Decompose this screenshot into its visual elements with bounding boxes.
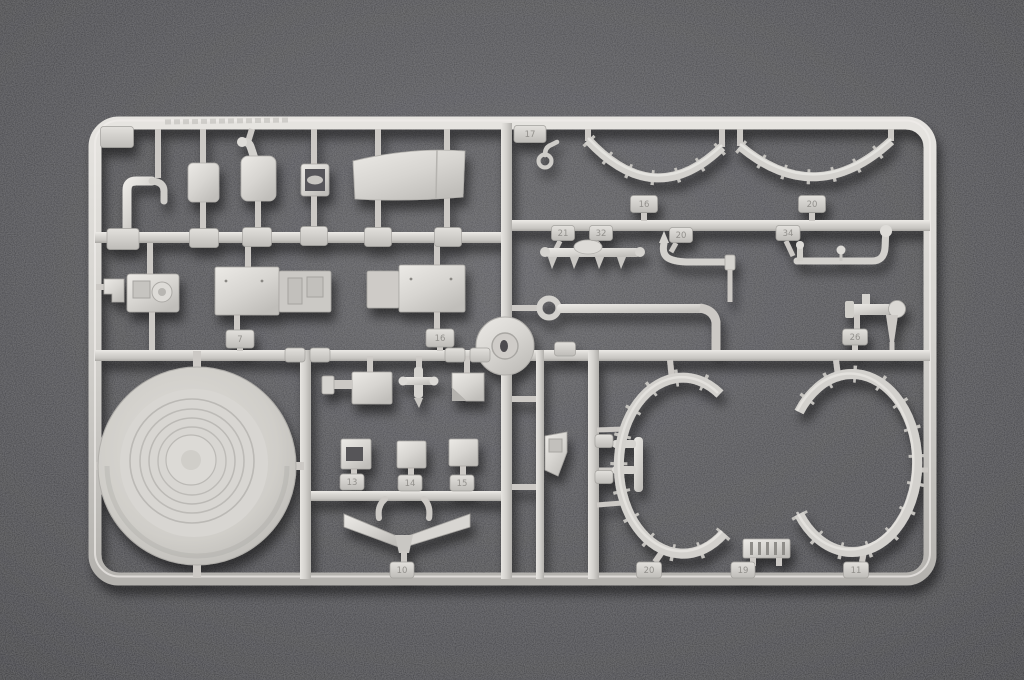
part-number-tag xyxy=(555,342,576,356)
part-number-label: 15 xyxy=(457,479,468,489)
part-number-label: 19 xyxy=(738,566,749,576)
part-number-label: 20 xyxy=(807,200,818,210)
part-number-tag xyxy=(101,127,134,148)
part-number-label: 16 xyxy=(639,200,650,210)
part-number-label: 16 xyxy=(435,334,446,344)
part-number-label: 32 xyxy=(596,229,607,239)
part-number-label: 14 xyxy=(405,479,416,489)
part-number-label: 34 xyxy=(783,229,794,239)
sprue-photo: 171620213220347162613141510201911 xyxy=(0,0,1024,680)
part-number-label: 17 xyxy=(525,130,536,140)
part-number-tag xyxy=(243,228,272,247)
part-number-tag xyxy=(285,348,305,362)
part-number-tag xyxy=(445,348,465,362)
part-number-label: 13 xyxy=(347,478,358,488)
part-number-tag xyxy=(595,435,613,448)
part-number-label: 20 xyxy=(676,231,687,241)
part-number-tag xyxy=(470,348,490,362)
part-number-label: 21 xyxy=(558,229,569,239)
part-number-label: 20 xyxy=(644,566,655,576)
part-number-label: 11 xyxy=(851,566,862,576)
photo-stage: 171620213220347162613141510201911 xyxy=(0,0,1024,680)
part-number-tag xyxy=(301,227,328,246)
part-number-tag xyxy=(435,228,462,247)
part-number-label: 10 xyxy=(397,566,408,576)
part-number-tag xyxy=(190,229,219,248)
part-number-label: 7 xyxy=(237,335,242,345)
part-number-tag xyxy=(310,348,330,362)
part-number-tag xyxy=(595,471,613,484)
part-number-label: 26 xyxy=(850,333,861,343)
part-number-tag xyxy=(107,229,139,250)
part-round-hub xyxy=(476,317,534,375)
part-number-tag xyxy=(365,228,392,247)
